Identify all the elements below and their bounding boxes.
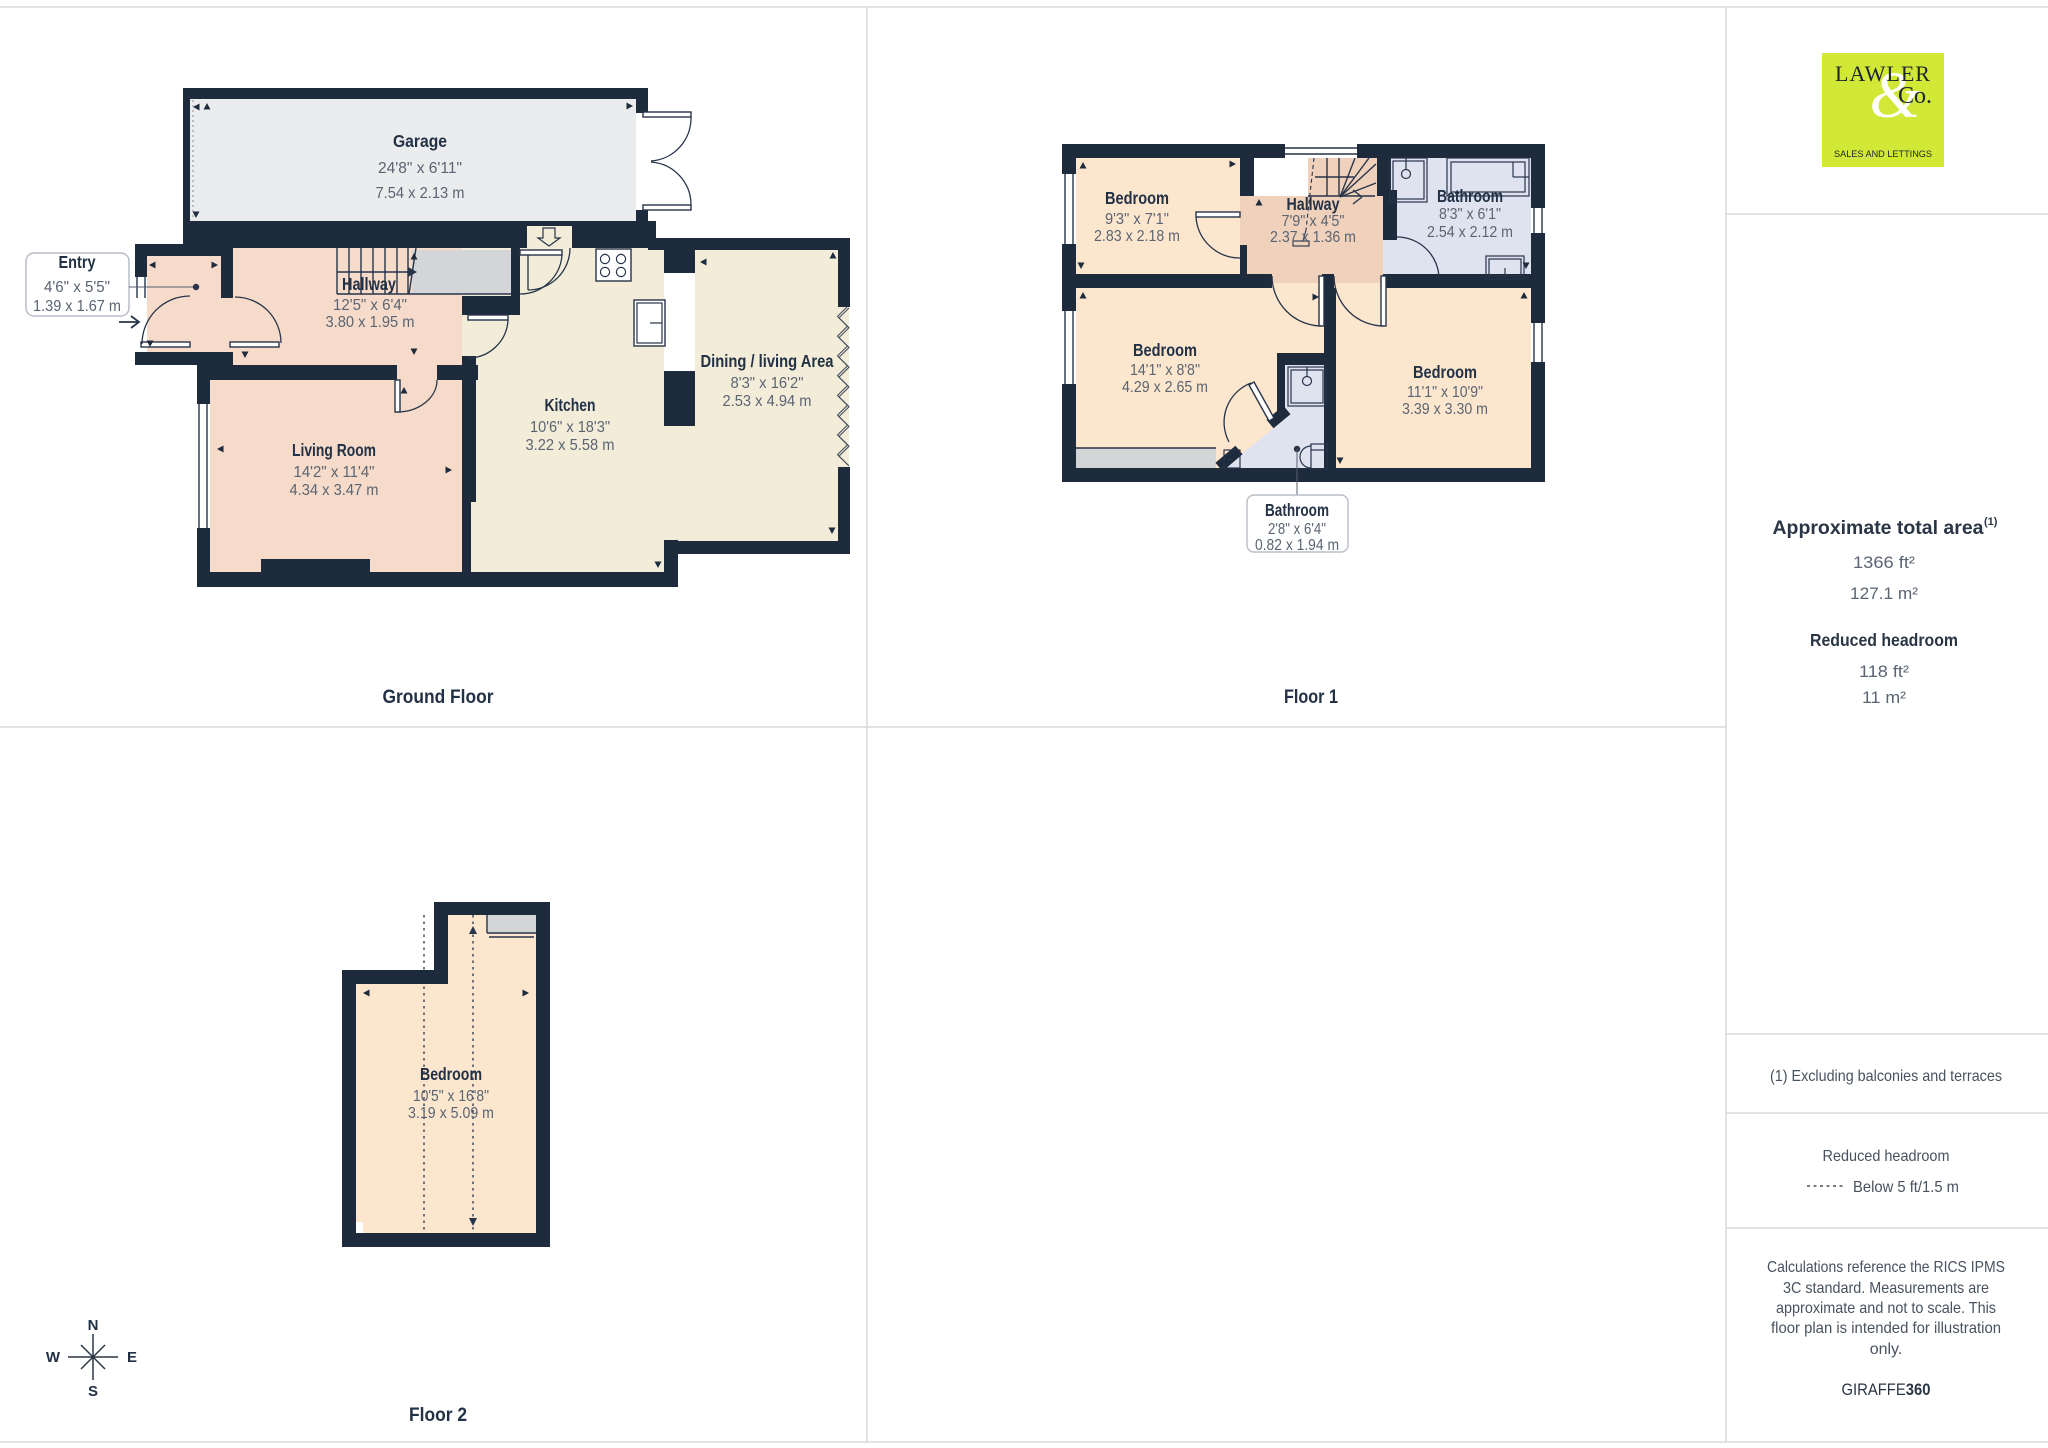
- svg-text:10'6" x 18'3": 10'6" x 18'3": [530, 419, 610, 436]
- svg-text:Below 5 ft/1.5 m: Below 5 ft/1.5 m: [1853, 1179, 1959, 1196]
- svg-text:7'9" x 4'5": 7'9" x 4'5": [1282, 213, 1345, 230]
- svg-text:Reduced headroom: Reduced headroom: [1810, 630, 1958, 650]
- svg-text:7.54 x 2.13 m: 7.54 x 2.13 m: [376, 185, 465, 202]
- svg-text:4.34 x 3.47 m: 4.34 x 3.47 m: [290, 482, 379, 499]
- svg-text:SALES AND LETTINGS: SALES AND LETTINGS: [1834, 149, 1932, 159]
- svg-text:Hallway: Hallway: [1287, 194, 1340, 214]
- svg-text:Dining / living Area: Dining / living Area: [701, 351, 834, 371]
- svg-text:Bathroom: Bathroom: [1437, 186, 1503, 206]
- svg-text:Living Room: Living Room: [292, 440, 376, 460]
- svg-text:127.1 m²: 127.1 m²: [1850, 584, 1918, 603]
- svg-text:Calculations reference the RIC: Calculations reference the RICS IPMS: [1767, 1259, 2005, 1276]
- svg-text:3C standard. Measurements are: 3C standard. Measurements are: [1783, 1280, 1989, 1297]
- svg-text:Ground Floor: Ground Floor: [383, 687, 495, 708]
- svg-text:Bathroom: Bathroom: [1265, 500, 1329, 520]
- svg-text:Floor 2: Floor 2: [409, 1405, 467, 1426]
- svg-text:4.29 x 2.65 m: 4.29 x 2.65 m: [1122, 379, 1208, 396]
- svg-text:Floor 1: Floor 1: [1284, 687, 1338, 708]
- svg-text:(1) Excluding balconies and te: (1) Excluding balconies and terraces: [1770, 1068, 2002, 1085]
- svg-text:Bedroom: Bedroom: [1133, 340, 1197, 360]
- svg-text:2.37 x 1.36 m: 2.37 x 1.36 m: [1270, 229, 1356, 246]
- svg-text:3.80 x 1.95 m: 3.80 x 1.95 m: [326, 314, 415, 331]
- svg-text:10'5" x 16'8": 10'5" x 16'8": [413, 1088, 489, 1105]
- svg-text:Co.: Co.: [1898, 83, 1932, 109]
- svg-text:S: S: [88, 1383, 98, 1400]
- svg-text:only.: only.: [1870, 1341, 1903, 1358]
- svg-text:W: W: [46, 1349, 61, 1366]
- svg-text:2.53 x 4.94 m: 2.53 x 4.94 m: [723, 393, 812, 410]
- svg-text:Bedroom: Bedroom: [1413, 362, 1477, 382]
- svg-text:8'3" x 16'2": 8'3" x 16'2": [731, 375, 804, 392]
- svg-text:4'6" x 5'5": 4'6" x 5'5": [44, 279, 110, 296]
- svg-text:14'2" x 11'4": 14'2" x 11'4": [294, 464, 375, 481]
- svg-text:E: E: [127, 1349, 137, 1366]
- svg-text:Bedroom: Bedroom: [1105, 188, 1169, 208]
- svg-text:Reduced headroom: Reduced headroom: [1823, 1148, 1950, 1165]
- svg-text:14'1" x 8'8": 14'1" x 8'8": [1130, 362, 1200, 379]
- svg-text:11 m²: 11 m²: [1862, 688, 1906, 707]
- svg-text:GIRAFFE360: GIRAFFE360: [1842, 1380, 1931, 1399]
- svg-text:3.19 x 5.09 m: 3.19 x 5.09 m: [408, 1105, 494, 1122]
- svg-text:24'8" x 6'11": 24'8" x 6'11": [378, 160, 462, 177]
- svg-text:2.54 x 2.12 m: 2.54 x 2.12 m: [1427, 224, 1513, 241]
- svg-text:2'8" x 6'4": 2'8" x 6'4": [1268, 521, 1326, 538]
- svg-text:Kitchen: Kitchen: [545, 395, 596, 415]
- svg-text:Hallway: Hallway: [342, 274, 396, 294]
- svg-text:12'5" x 6'4": 12'5" x 6'4": [333, 297, 407, 314]
- svg-text:0.82 x 1.94 m: 0.82 x 1.94 m: [1255, 537, 1339, 554]
- svg-text:floor plan is intended for ill: floor plan is intended for illustration: [1771, 1320, 2001, 1337]
- svg-text:approximate and not to scale.: approximate and not to scale. This: [1776, 1300, 1996, 1317]
- svg-text:1.39 x 1.67 m: 1.39 x 1.67 m: [33, 298, 121, 315]
- svg-text:8'3" x 6'1": 8'3" x 6'1": [1439, 206, 1501, 223]
- svg-text:11'1" x 10'9": 11'1" x 10'9": [1407, 384, 1483, 401]
- svg-text:N: N: [88, 1317, 99, 1334]
- svg-text:3.22 x 5.58 m: 3.22 x 5.58 m: [526, 437, 615, 454]
- svg-text:Bedroom: Bedroom: [420, 1064, 482, 1084]
- svg-text:(1): (1): [1984, 516, 1998, 528]
- svg-text:118 ft²: 118 ft²: [1859, 662, 1909, 681]
- svg-text:Approximate total area: Approximate total area: [1773, 517, 1984, 539]
- svg-text:3.39 x 3.30 m: 3.39 x 3.30 m: [1402, 401, 1488, 418]
- svg-text:2.83 x 2.18 m: 2.83 x 2.18 m: [1094, 228, 1180, 245]
- svg-text:Entry: Entry: [59, 252, 96, 272]
- svg-text:1366 ft²: 1366 ft²: [1853, 553, 1915, 572]
- svg-text:Garage: Garage: [393, 131, 447, 151]
- svg-text:9'3" x 7'1": 9'3" x 7'1": [1105, 211, 1169, 228]
